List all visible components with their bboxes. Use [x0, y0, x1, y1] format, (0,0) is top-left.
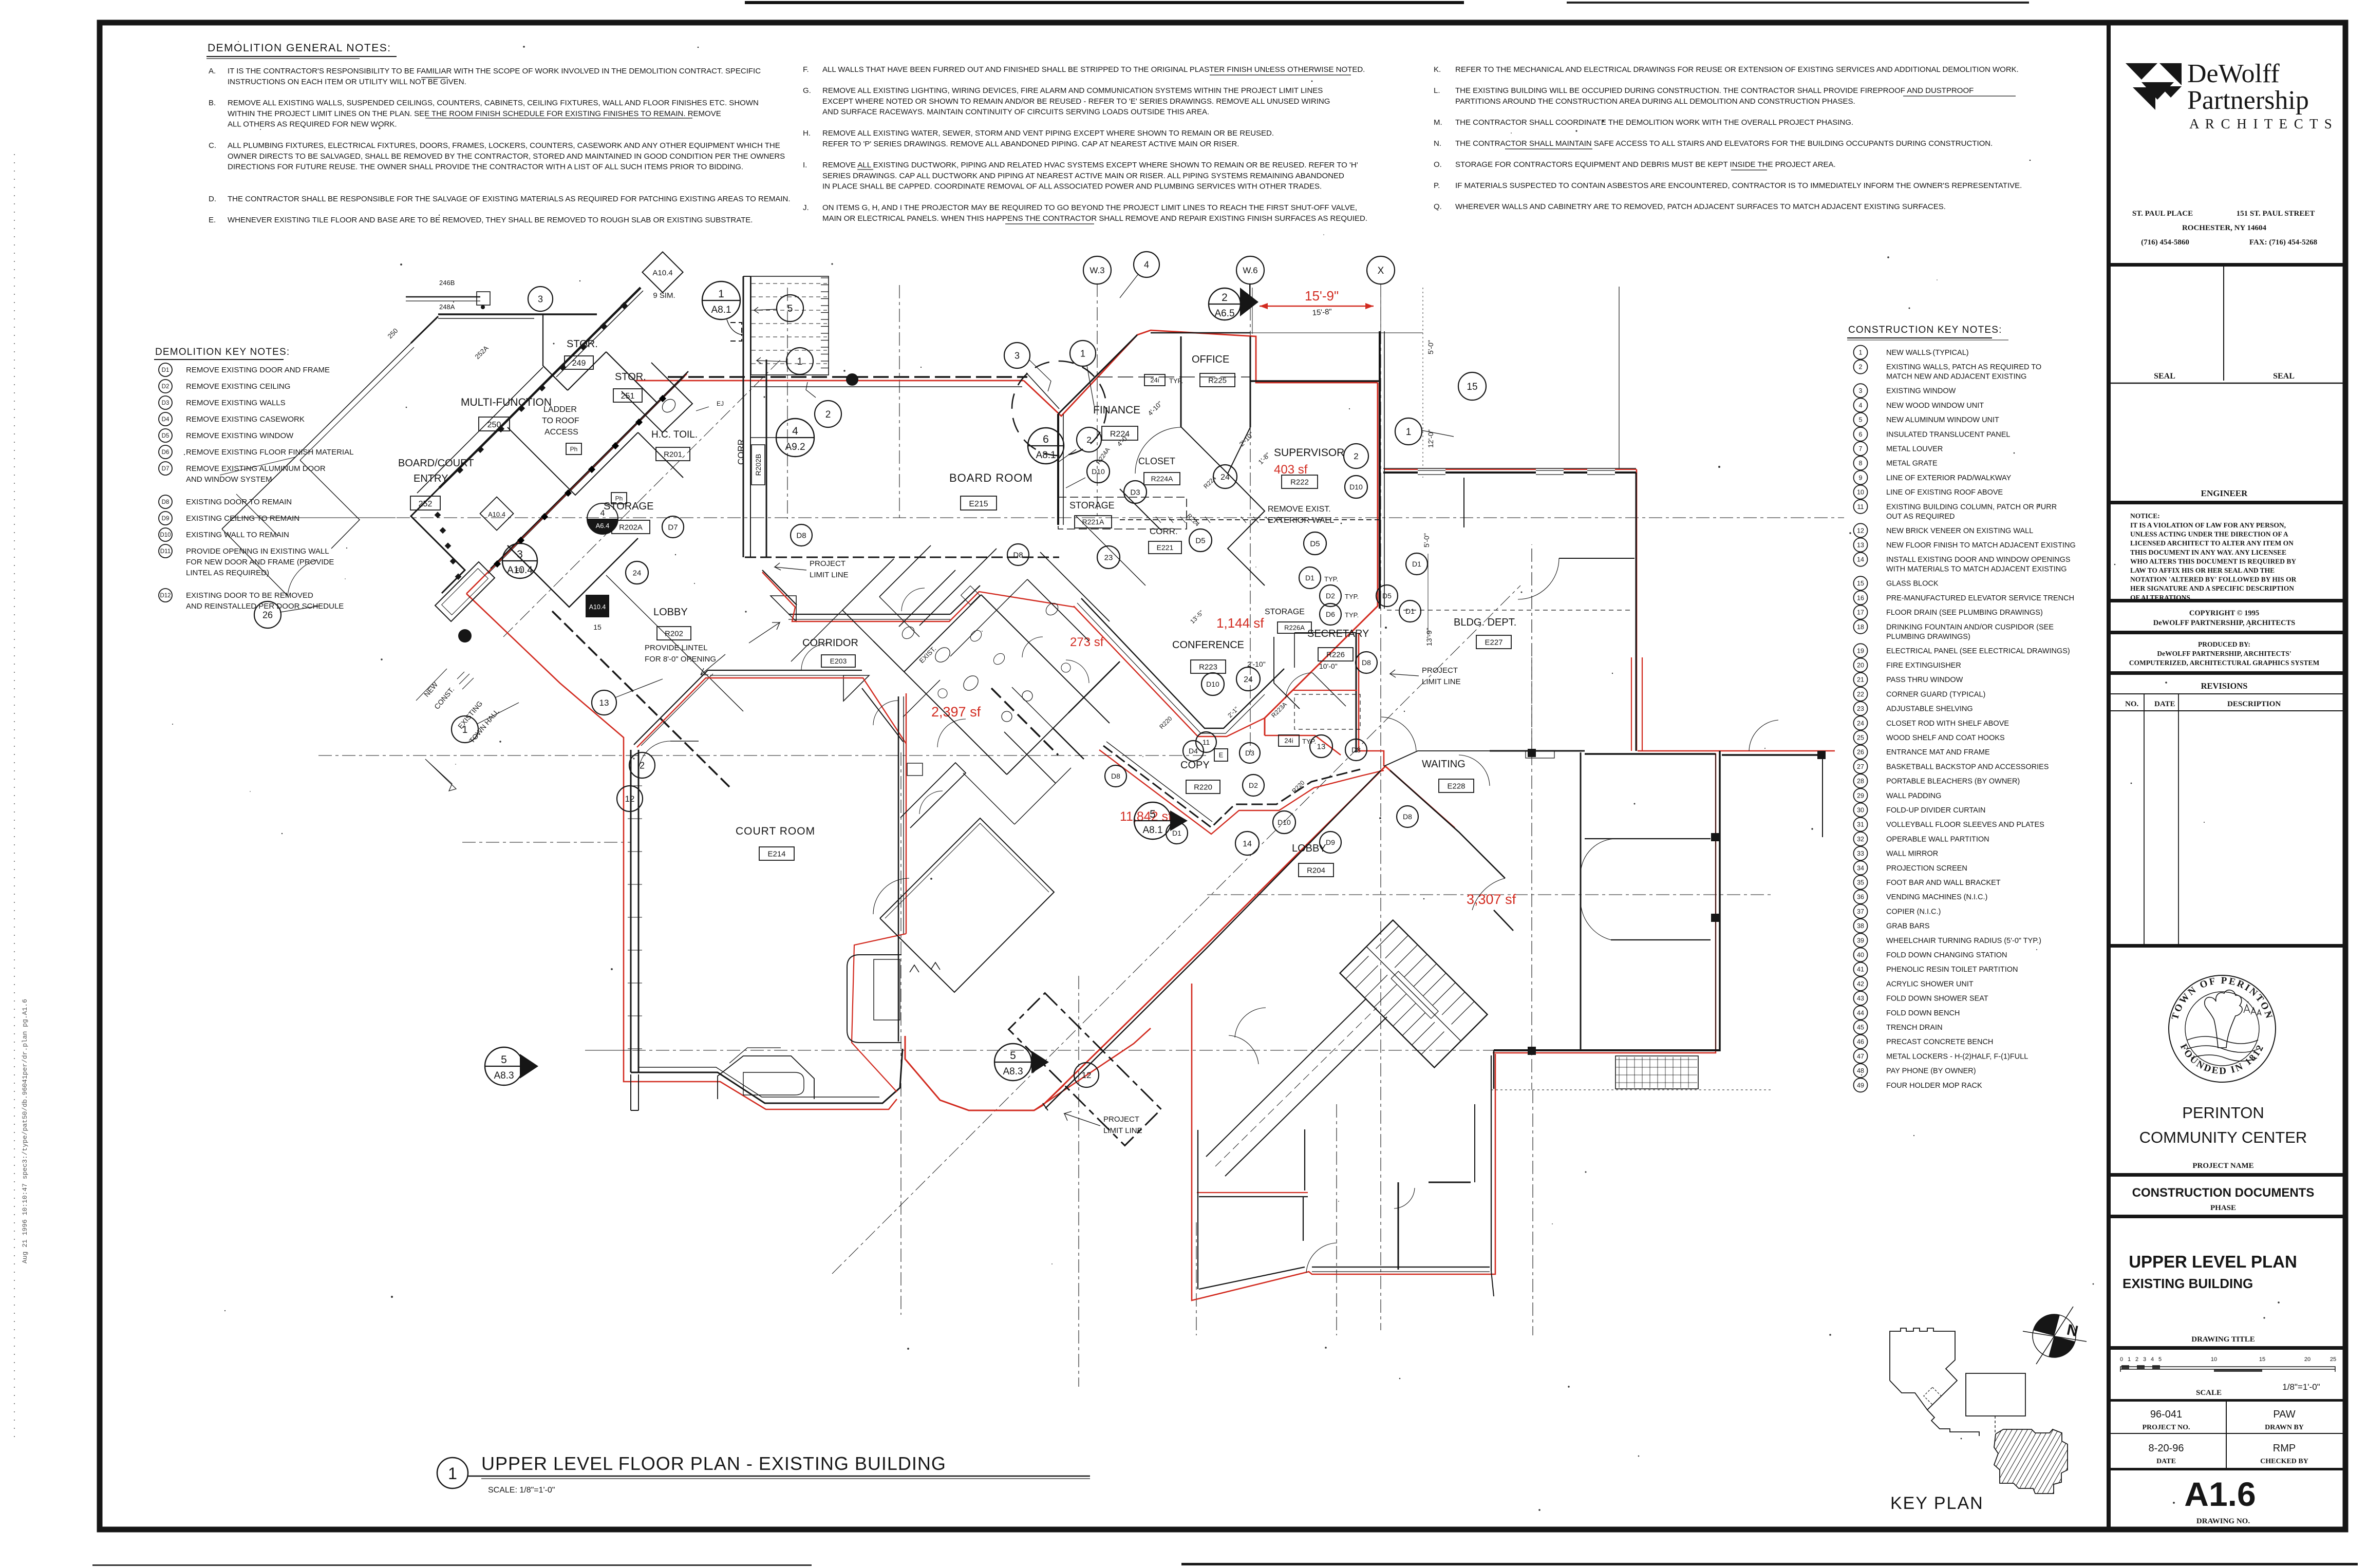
svg-text:D8: D8 — [1403, 813, 1412, 821]
svg-text:VENDING MACHINES (N.I.C.): VENDING MACHINES (N.I.C.) — [1886, 893, 1987, 901]
svg-text:DATE: DATE — [2154, 700, 2175, 708]
svg-text:SUPERVISOR: SUPERVISOR — [1274, 447, 1344, 459]
svg-text:PASS THRU WINDOW: PASS THRU WINDOW — [1886, 676, 1963, 684]
svg-text:R202: R202 — [665, 629, 683, 638]
svg-text:A8.1: A8.1 — [711, 305, 731, 315]
svg-text:REMOVE EXISTING FLOOR FINISH M: REMOVE EXISTING FLOOR FINISH MATERIAL — [186, 448, 353, 457]
svg-text:5: 5 — [2158, 1356, 2162, 1363]
svg-text:TYP.: TYP. — [1345, 593, 1359, 600]
svg-text:4: 4 — [1144, 259, 1149, 270]
svg-text:AND WINDOW SYSTEM: AND WINDOW SYSTEM — [186, 475, 272, 484]
svg-text:13'-9": 13'-9" — [1425, 628, 1433, 646]
svg-text:3: 3 — [538, 294, 543, 304]
svg-text:DRAWING NO.: DRAWING NO. — [2196, 1517, 2250, 1525]
svg-text:12: 12 — [1082, 1070, 1092, 1080]
svg-text:13: 13 — [1317, 742, 1326, 751]
svg-text:47: 47 — [1857, 1053, 1864, 1060]
svg-text:EXISTING BUILDING: EXISTING BUILDING — [2122, 1276, 2253, 1291]
svg-text:TYP.: TYP. — [1345, 611, 1359, 619]
svg-text:COURT ROOM: COURT ROOM — [736, 825, 815, 837]
svg-text:3: 3 — [1015, 350, 1020, 361]
svg-text:CONFERENCE: CONFERENCE — [1172, 639, 1244, 651]
svg-text:INSULATED TRANSLUCENT PANEL: INSULATED TRANSLUCENT PANEL — [1886, 430, 2010, 439]
svg-text:Ph: Ph — [570, 445, 578, 452]
svg-text:W.3: W.3 — [1089, 266, 1104, 275]
svg-text:SEAL: SEAL — [2273, 372, 2295, 381]
svg-text:L.: L. — [1434, 86, 1440, 95]
svg-text:REVISIONS: REVISIONS — [2201, 681, 2248, 691]
svg-text:FAX: (716) 454-5268: FAX: (716) 454-5268 — [2249, 238, 2317, 247]
svg-text:24i: 24i — [1284, 737, 1293, 745]
svg-text:R226: R226 — [1326, 650, 1345, 659]
svg-text:151 ST. PAUL STREET: 151 ST. PAUL STREET — [2237, 210, 2315, 218]
svg-text:5: 5 — [787, 304, 793, 314]
svg-text:27: 27 — [1857, 763, 1864, 770]
svg-text:A6.5: A6.5 — [1214, 308, 1234, 319]
svg-text:NO.: NO. — [2125, 700, 2139, 708]
svg-text:BOARD ROOM: BOARD ROOM — [949, 471, 1033, 484]
svg-text:40: 40 — [1857, 952, 1864, 959]
svg-text:THE CONTRACTOR SHALL COORDINAT: THE CONTRACTOR SHALL COORDINATE THE DEMO… — [1455, 118, 1853, 127]
svg-text:35: 35 — [1857, 879, 1864, 886]
svg-text:CLOSET ROD WITH SHELF ABOVE: CLOSET ROD WITH SHELF ABOVE — [1886, 720, 2009, 728]
svg-text:ALL WALLS THAT HAVE BEEN FURRE: ALL WALLS THAT HAVE BEEN FURRED OUT AND … — [822, 65, 1365, 74]
svg-text:12: 12 — [1857, 527, 1864, 534]
svg-text:LOBBY: LOBBY — [653, 607, 688, 618]
svg-text:A10.4: A10.4 — [589, 603, 606, 611]
svg-text:AND REINSTALLED PER DOOR SCHED: AND REINSTALLED PER DOOR SCHEDULE — [186, 602, 344, 611]
svg-text:12'-0": 12'-0" — [1426, 429, 1435, 448]
svg-text:D8: D8 — [1111, 772, 1120, 780]
svg-text:N.: N. — [1434, 139, 1441, 148]
svg-text:D1: D1 — [1405, 607, 1415, 615]
svg-text:ST. PAUL PLACE: ST. PAUL PLACE — [2132, 210, 2193, 218]
svg-text:29: 29 — [1857, 792, 1864, 799]
svg-text:3: 3 — [2143, 1356, 2146, 1363]
svg-text:BASKETBALL BACKSTOP AND ACCESS: BASKETBALL BACKSTOP AND ACCESSORIES — [1886, 763, 2049, 771]
svg-text:W.6: W.6 — [1243, 266, 1257, 275]
svg-text:WHO ALTERS THIS DOCUMENT IS RE: WHO ALTERS THIS DOCUMENT IS REQUIRED BY — [2130, 557, 2296, 565]
svg-text:1: 1 — [448, 1464, 457, 1483]
svg-text:22: 22 — [1857, 691, 1864, 698]
svg-text:17: 17 — [1857, 609, 1864, 616]
svg-text:44: 44 — [1857, 1009, 1864, 1016]
svg-text:E221: E221 — [1157, 543, 1174, 552]
svg-text:SCALE: SCALE — [2196, 1389, 2222, 1397]
svg-text:D2: D2 — [1326, 592, 1335, 600]
svg-text:GLASS BLOCK: GLASS BLOCK — [1886, 580, 1939, 588]
svg-text:E203: E203 — [830, 657, 847, 665]
svg-text:FOUR HOLDER MOP RACK: FOUR HOLDER MOP RACK — [1886, 1082, 1982, 1090]
svg-text:THE CONTRACTOR SHALL BE RESPON: THE CONTRACTOR SHALL BE RESPONSIBLE FOR … — [228, 195, 791, 203]
svg-text:DeWolff: DeWolff — [2187, 59, 2280, 88]
svg-text:11: 11 — [1857, 503, 1864, 511]
svg-text:Partnership: Partnership — [2187, 86, 2309, 115]
svg-text:R202A: R202A — [619, 523, 643, 532]
svg-text:DESCRIPTION: DESCRIPTION — [2227, 700, 2281, 708]
svg-text:REFER TO 'P' SERIES DRAWINGS.: REFER TO 'P' SERIES DRAWINGS. REMOVE ALL… — [822, 140, 1239, 148]
svg-text:46: 46 — [1857, 1038, 1864, 1046]
svg-text:INSTRUCTIONS ON EACH ITEM OR U: INSTRUCTIONS ON EACH ITEM OR UTILITY WIL… — [228, 78, 466, 86]
svg-text:R224A: R224A — [1151, 475, 1173, 483]
svg-text:H.: H. — [803, 129, 811, 138]
svg-text:Ph: Ph — [615, 495, 623, 502]
svg-text:15: 15 — [593, 623, 602, 631]
svg-text:EXISTING WINDOW: EXISTING WINDOW — [1886, 387, 1956, 395]
svg-text:43: 43 — [1857, 995, 1864, 1002]
svg-text:REMOVE ALL EXISTING DUCTWORK,: REMOVE ALL EXISTING DUCTWORK, PIPING AND… — [822, 161, 1358, 169]
svg-text:FOR NEW DOOR AND FRAME (PROVID: FOR NEW DOOR AND FRAME (PROVIDE — [186, 558, 334, 566]
svg-text:PROJECT: PROJECT — [810, 559, 846, 568]
svg-text:96-041: 96-041 — [2150, 1409, 2182, 1420]
svg-text:D3: D3 — [162, 400, 170, 406]
svg-text:B.: B. — [209, 99, 216, 107]
svg-text:2: 2 — [1222, 292, 1228, 304]
svg-text:G.: G. — [803, 86, 811, 95]
svg-text:I.: I. — [803, 161, 807, 169]
svg-text:ROCHESTER, NY 14604: ROCHESTER, NY 14604 — [2182, 224, 2267, 232]
svg-text:9: 9 — [1859, 474, 1863, 481]
svg-text:26: 26 — [1857, 749, 1864, 756]
svg-text:SECRETARY: SECRETARY — [1307, 628, 1369, 639]
svg-text:11,842 sf: 11,842 sf — [1120, 809, 1172, 824]
svg-text:FOLD-UP DIVIDER CURTAIN: FOLD-UP DIVIDER CURTAIN — [1886, 806, 1985, 815]
svg-text:14: 14 — [1857, 556, 1864, 563]
svg-text:LICENSED ARCHITECT TO ALTER AN: LICENSED ARCHITECT TO ALTER ANY ITEM ON — [2130, 539, 2294, 547]
svg-text:FIRE EXTINGUISHER: FIRE EXTINGUISHER — [1886, 662, 1961, 670]
svg-text:CORR.: CORR. — [1150, 526, 1178, 536]
svg-text:LINE OF EXISTING ROOF ABOVE: LINE OF EXISTING ROOF ABOVE — [1886, 488, 2003, 497]
svg-text:R226A: R226A — [1284, 624, 1305, 632]
svg-text:14: 14 — [1243, 840, 1252, 848]
svg-text:25: 25 — [1857, 734, 1864, 742]
svg-text:SERIES DRAWINGS. CAP ALL DUCT: SERIES DRAWINGS. CAP ALL DUCTWORK AND PI… — [822, 172, 1344, 180]
svg-text:246B: 246B — [439, 279, 455, 287]
svg-text:E214: E214 — [767, 849, 785, 858]
svg-text:D6: D6 — [162, 449, 170, 456]
svg-text:D1: D1 — [1172, 829, 1181, 837]
svg-text:PERINTON: PERINTON — [2182, 1104, 2264, 1122]
svg-text:3: 3 — [517, 549, 523, 560]
svg-text:ADJUSTABLE SHELVING: ADJUSTABLE SHELVING — [1886, 705, 1973, 713]
svg-text:DRAWING TITLE: DRAWING TITLE — [2191, 1335, 2255, 1344]
svg-text:5: 5 — [1859, 417, 1863, 424]
svg-text:WITHIN THE PROJECT LIMIT LINES: WITHIN THE PROJECT LIMIT LINES ON THE PL… — [228, 109, 721, 118]
svg-text:A8.3: A8.3 — [1003, 1066, 1023, 1077]
svg-text:15'-9": 15'-9" — [1305, 288, 1339, 304]
svg-text:REMOVE ALL EXISTING WATER, SEW: REMOVE ALL EXISTING WATER, SEWER, STORM … — [822, 129, 1274, 138]
svg-text:36: 36 — [1857, 894, 1864, 901]
svg-text:2: 2 — [2135, 1356, 2138, 1363]
svg-text:PROJECT: PROJECT — [1103, 1115, 1139, 1124]
svg-text:FOLD DOWN BENCH: FOLD DOWN BENCH — [1886, 1009, 1960, 1017]
svg-text:FOLD DOWN CHANGING STATION: FOLD DOWN CHANGING STATION — [1886, 951, 2007, 959]
svg-text:WAITING: WAITING — [1422, 759, 1466, 770]
svg-text:6: 6 — [1859, 431, 1863, 438]
svg-text:SCALE: 1/8"=1'-0": SCALE: 1/8"=1'-0" — [488, 1486, 555, 1495]
svg-text:A8.3: A8.3 — [494, 1070, 514, 1081]
svg-text:273 sf: 273 sf — [1070, 635, 1104, 649]
svg-text:E215: E215 — [969, 500, 988, 508]
svg-text:COMMUNITY CENTER: COMMUNITY CENTER — [2139, 1128, 2307, 1146]
svg-text:X: X — [1378, 266, 1384, 276]
svg-text:K.: K. — [1434, 65, 1441, 74]
svg-text:248A: 248A — [439, 303, 455, 311]
svg-text:REMOVE EXISTING WINDOW: REMOVE EXISTING WINDOW — [186, 431, 294, 440]
svg-text:NOTATION 'ALTERED BY' FOLLOWED: NOTATION 'ALTERED BY' FOLLOWED BY HIS OR — [2130, 576, 2297, 583]
svg-text:250: 250 — [487, 421, 501, 429]
svg-text:R225: R225 — [1208, 376, 1227, 385]
svg-text:DRINKING FOUNTAIN AND/OR CUSPI: DRINKING FOUNTAIN AND/OR CUSPIDOR (SEE — [1886, 623, 2054, 631]
svg-text:CORR.: CORR. — [736, 437, 746, 465]
svg-text:PROJECT NAME: PROJECT NAME — [2192, 1162, 2253, 1170]
svg-text:A.: A. — [209, 67, 216, 75]
svg-text:WHEREVER WALLS AND CABINETRY A: WHEREVER WALLS AND CABINETRY ARE TO REMO… — [1455, 202, 1946, 211]
svg-text:34: 34 — [1857, 864, 1864, 872]
svg-text:GRAB BARS: GRAB BARS — [1886, 922, 1930, 931]
svg-text:PRE-MANUFACTURED ELEVATOR SERV: PRE-MANUFACTURED ELEVATOR SERVICE TRENCH — [1886, 594, 2074, 602]
svg-text:ACCESS: ACCESS — [544, 428, 578, 437]
svg-text:D8: D8 — [1351, 746, 1361, 754]
svg-text:OFFICE: OFFICE — [1192, 354, 1229, 365]
svg-text:J.: J. — [803, 203, 809, 212]
svg-text:COPIER (N.I.C.): COPIER (N.I.C.) — [1886, 908, 1941, 916]
svg-text:D10: D10 — [1349, 483, 1363, 491]
svg-text:D2: D2 — [1249, 781, 1258, 789]
svg-text:D10: D10 — [160, 532, 171, 538]
svg-text:(716) 454-5860: (716) 454-5860 — [2141, 238, 2189, 247]
svg-text:EXISTING WALLS, PATCH AS REQUI: EXISTING WALLS, PATCH AS REQUIRED TO — [1886, 363, 2041, 371]
svg-text:E.: E. — [209, 216, 216, 224]
svg-text:STORAGE: STORAGE — [1265, 608, 1305, 616]
svg-text:1/8"=1'-0": 1/8"=1'-0" — [2282, 1382, 2320, 1392]
svg-text:D5: D5 — [162, 433, 170, 439]
svg-text:D5: D5 — [1310, 539, 1320, 548]
svg-text:INSTALL EXISTING DOOR AND WIND: INSTALL EXISTING DOOR AND WINDOW OPENING… — [1886, 556, 2071, 564]
svg-text:D8: D8 — [1013, 551, 1023, 559]
svg-text:D10: D10 — [1092, 467, 1105, 476]
svg-text:VOLLEYBALL FLOOR SLEEVES AND P: VOLLEYBALL FLOOR SLEEVES AND PLATES — [1886, 821, 2044, 829]
svg-text:REMOVE EXISTING ALUMINUM DOOR: REMOVE EXISTING ALUMINUM DOOR — [186, 464, 326, 473]
svg-text:ENTRY: ENTRY — [414, 473, 448, 484]
svg-text:D3: D3 — [1130, 488, 1140, 497]
svg-text:D5: D5 — [1195, 536, 1205, 545]
svg-text:13: 13 — [1857, 542, 1864, 549]
svg-text:D12: D12 — [160, 593, 171, 599]
svg-text:D6: D6 — [1326, 610, 1335, 618]
svg-text:D4: D4 — [1189, 747, 1198, 755]
svg-text:LINE OF EXTERIOR PAD/WALKWAY: LINE OF EXTERIOR PAD/WALKWAY — [1886, 474, 2012, 482]
svg-text:FOLD DOWN SHOWER SEAT: FOLD DOWN SHOWER SEAT — [1886, 995, 1988, 1003]
svg-text:P.: P. — [1434, 181, 1440, 190]
svg-text:AND SURFACE RACEWAYS. MAINTAI: AND SURFACE RACEWAYS. MAINTAIN CONTINUIT… — [822, 108, 1209, 117]
svg-text:ENGINEER: ENGINEER — [2201, 488, 2248, 498]
svg-text:LIMIT LINE: LIMIT LINE — [810, 571, 849, 579]
svg-text:A8.1: A8.1 — [1142, 825, 1162, 836]
svg-text:MATCH NEW AND ADJACENT EXISTIN: MATCH NEW AND ADJACENT EXISTING — [1886, 373, 2026, 381]
svg-text:252: 252 — [419, 500, 433, 508]
svg-text:15: 15 — [2259, 1356, 2265, 1363]
svg-text:D.: D. — [209, 195, 216, 203]
svg-text:ACRYLIC SHOWER UNIT: ACRYLIC SHOWER UNIT — [1886, 980, 1974, 988]
svg-text:FLOOR DRAIN (SEE PLUMBING DRAW: FLOOR DRAIN (SEE PLUMBING DRAWINGS) — [1886, 609, 2043, 617]
svg-text:1: 1 — [1080, 348, 1085, 358]
svg-text:4: 4 — [792, 425, 798, 437]
svg-text:1,144 sf: 1,144 sf — [1216, 615, 1264, 631]
svg-text:37: 37 — [1857, 908, 1864, 915]
svg-text:LAW TO AFFIX HIS OR HER SEAL A: LAW TO AFFIX HIS OR HER SEAL AND THE — [2130, 566, 2275, 574]
svg-text:2: 2 — [1354, 451, 1358, 461]
svg-text:2: 2 — [1859, 364, 1863, 371]
svg-text:7: 7 — [1859, 445, 1863, 452]
svg-text:OWNER DIRECTS TO BE SALVAGED,: OWNER DIRECTS TO BE SALVAGED, SHALL BE R… — [228, 152, 785, 161]
svg-text:R221A: R221A — [1082, 518, 1104, 526]
svg-text:WHENEVER EXISTING TILE FLOOR A: WHENEVER EXISTING TILE FLOOR AND BASE AR… — [228, 216, 753, 224]
svg-text:OPERABLE WALL PARTITION: OPERABLE WALL PARTITION — [1886, 835, 1989, 843]
svg-text:SEAL: SEAL — [2154, 372, 2175, 381]
svg-text:DIRECTIONS FOR FUTURE REUSE.: DIRECTIONS FOR FUTURE REUSE. THE OWNER S… — [228, 163, 743, 172]
svg-text:23: 23 — [1104, 553, 1113, 562]
svg-text:18: 18 — [1857, 624, 1864, 631]
svg-text:30: 30 — [1857, 807, 1864, 814]
svg-text:CONSTRUCTION DOCUMENTS: CONSTRUCTION DOCUMENTS — [2132, 1186, 2315, 1200]
svg-text:ELECTRICAL PANEL (SEE ELECTRIC: ELECTRICAL PANEL (SEE ELECTRICAL DRAWING… — [1886, 647, 2070, 655]
svg-text:A10.4: A10.4 — [488, 511, 505, 518]
svg-text:A R C H I T E C T S: A R C H I T E C T S — [2189, 116, 2334, 131]
svg-text:10: 10 — [2211, 1356, 2217, 1363]
svg-text:R223: R223 — [1199, 663, 1217, 671]
svg-text:249: 249 — [572, 359, 586, 368]
svg-text:8: 8 — [1859, 460, 1863, 467]
svg-text:D8: D8 — [796, 531, 806, 540]
svg-text:STORAGE FOR CONTRACTORS EQUIPM: STORAGE FOR CONTRACTORS EQUIPMENT AND DE… — [1455, 160, 1836, 169]
svg-text:1: 1 — [718, 288, 724, 300]
svg-text:THE CONTRACTOR SHALL MAINTAIN: THE CONTRACTOR SHALL MAINTAIN SAFE ACCES… — [1455, 139, 1993, 148]
svg-text:DEMOLITION KEY NOTES:: DEMOLITION KEY NOTES: — [155, 347, 290, 357]
svg-text:1: 1 — [797, 356, 803, 367]
svg-text:THE EXISTING BUILDING WILL BE: THE EXISTING BUILDING WILL BE OCCUPIED D… — [1455, 86, 1974, 95]
svg-text:RMP: RMP — [2273, 1443, 2296, 1454]
svg-text:EXISTING DOOR TO BE REMOVED: EXISTING DOOR TO BE REMOVED — [186, 591, 313, 600]
svg-text:EXTERIOR WALL: EXTERIOR WALL — [1268, 516, 1334, 525]
svg-text:FOOT BAR AND WALL BRACKET: FOOT BAR AND WALL BRACKET — [1886, 879, 2001, 887]
svg-text:ON ITEMS G, H, AND I THE PROJE: ON ITEMS G, H, AND I THE PROJECTOR MAY B… — [822, 203, 1357, 212]
svg-text:1: 1 — [1859, 349, 1863, 356]
svg-text:38: 38 — [1857, 922, 1864, 930]
svg-text:TYP.: TYP. — [1324, 575, 1338, 583]
svg-text:CONSTRUCTION KEY NOTES:: CONSTRUCTION KEY NOTES: — [1848, 325, 2002, 335]
svg-text:16: 16 — [1857, 594, 1864, 601]
svg-text:M.: M. — [1434, 118, 1442, 127]
svg-text:NEW WOOD WINDOW UNIT: NEW WOOD WINDOW UNIT — [1886, 402, 1984, 410]
svg-text:D7: D7 — [162, 466, 170, 472]
svg-text:BLDG. DEPT.: BLDG. DEPT. — [1454, 617, 1516, 628]
svg-text:KEY PLAN: KEY PLAN — [1890, 1494, 1984, 1513]
svg-text:5: 5 — [1150, 808, 1156, 820]
svg-text:9 SIM.: 9 SIM. — [653, 291, 675, 300]
svg-text:COPYRIGHT © 1995: COPYRIGHT © 1995 — [2189, 609, 2259, 617]
svg-text:NEW ALUMINUM WINDOW UNIT: NEW ALUMINUM WINDOW UNIT — [1886, 416, 1999, 424]
svg-text:E227: E227 — [1485, 638, 1502, 647]
svg-text:A10.4: A10.4 — [652, 269, 672, 277]
svg-text:24: 24 — [1857, 720, 1864, 727]
svg-text:6: 6 — [1043, 433, 1049, 445]
svg-text:FOR 8'-0" OPENING: FOR 8'-0" OPENING — [645, 655, 716, 664]
svg-text:Aug 21 1996 10:10:47 spec3:: Aug 21 1996 10:10:47 spec3:/type/pat50/d… — [21, 999, 29, 1263]
svg-text:39: 39 — [1857, 937, 1864, 944]
svg-text:PHENOLIC RESIN TOILET PARTITIO: PHENOLIC RESIN TOILET PARTITION — [1886, 966, 2018, 974]
svg-text:DRAWN BY: DRAWN BY — [2265, 1424, 2304, 1431]
svg-text:R204: R204 — [1307, 866, 1325, 875]
svg-text:PRODUCED BY:: PRODUCED BY: — [2198, 640, 2250, 648]
svg-text:REMOVE ALL EXISTING LIGHTING,: REMOVE ALL EXISTING LIGHTING, WIRING DEV… — [822, 86, 1323, 95]
svg-text:32: 32 — [1857, 836, 1864, 843]
svg-text:D1: D1 — [162, 367, 170, 373]
svg-text:PROJECTION SCREEN: PROJECTION SCREEN — [1886, 864, 1967, 873]
svg-text:D8: D8 — [162, 499, 170, 505]
svg-text:24: 24 — [633, 569, 642, 577]
svg-text:3: 3 — [1859, 387, 1863, 394]
svg-text:DATE: DATE — [2156, 1458, 2176, 1465]
svg-text:IT IS A VIOLATION OF LAW FOR A: IT IS A VIOLATION OF LAW FOR ANY PERSON, — [2130, 521, 2286, 529]
svg-text:REMOVE EXISTING WALLS: REMOVE EXISTING WALLS — [186, 399, 286, 407]
svg-text:HER SIGNATURE AND A SPECIFIC D: HER SIGNATURE AND A SPECIFIC DESCRIPTION — [2130, 584, 2294, 592]
svg-text:REFER TO THE MECHANICAL AND EL: REFER TO THE MECHANICAL AND ELECTRICAL D… — [1455, 65, 2019, 74]
svg-text:MAIN OR ELECTRICAL PANELS. WH: MAIN OR ELECTRICAL PANELS. WHEN THIS HAP… — [822, 214, 1367, 223]
svg-text:D3: D3 — [1245, 749, 1254, 757]
svg-text:METAL GRATE: METAL GRATE — [1886, 460, 1938, 468]
svg-text:LINTEL AS REQUIRED): LINTEL AS REQUIRED) — [186, 569, 269, 577]
svg-text:2: 2 — [1086, 435, 1091, 445]
svg-text:REMOVE ALL EXISTING WALLS, SUS: REMOVE ALL EXISTING WALLS, SUSPENDED CEI… — [228, 99, 759, 107]
svg-text:WITH MATERIALS TO MATCH ADJACE: WITH MATERIALS TO MATCH ADJACENT EXISTIN… — [1886, 565, 2067, 574]
svg-text:WALL PADDING: WALL PADDING — [1886, 792, 1941, 800]
svg-text:LIMIT LINE: LIMIT LINE — [1422, 677, 1461, 686]
svg-text:A9.2: A9.2 — [785, 442, 805, 452]
svg-text:D2: D2 — [162, 384, 170, 390]
svg-text:45: 45 — [1857, 1024, 1864, 1031]
svg-text:24: 24 — [1244, 675, 1253, 684]
svg-text:EXISTING CEILING TO REMAIN: EXISTING CEILING TO REMAIN — [186, 514, 299, 523]
svg-text:8-20-96: 8-20-96 — [2149, 1443, 2184, 1454]
svg-text:33: 33 — [1857, 850, 1864, 857]
svg-text:251: 251 — [621, 392, 635, 401]
svg-text:IF MATERIALS SUSPECTED TO CONT: IF MATERIALS SUSPECTED TO CONTAIN ASBEST… — [1455, 181, 2022, 190]
svg-text:2: 2 — [825, 409, 831, 420]
svg-text:D4: D4 — [162, 417, 170, 423]
svg-text:C.: C. — [209, 141, 216, 150]
svg-text:PORTABLE BLEACHERS (BY OWNER): PORTABLE BLEACHERS (BY OWNER) — [1886, 778, 2020, 786]
svg-text:DEMOLITION GENERAL NOTES:: DEMOLITION GENERAL NOTES: — [208, 42, 391, 54]
svg-text:EJ: EJ — [515, 567, 522, 574]
svg-text:E228: E228 — [1447, 782, 1465, 790]
svg-text:NEW WALLS (TYPICAL): NEW WALLS (TYPICAL) — [1886, 349, 1969, 357]
svg-text:IN PLACE SHALL BE CAPPED. COO: IN PLACE SHALL BE CAPPED. COORDINATE REM… — [822, 182, 1322, 191]
svg-text:TYP.: TYP. — [1302, 738, 1316, 745]
svg-text:PAY PHONE (BY OWNER): PAY PHONE (BY OWNER) — [1886, 1067, 1976, 1075]
svg-text:F.: F. — [803, 65, 809, 74]
svg-text:DeWOLFF PARTNERSHIP, ARCHITECT: DeWOLFF PARTNERSHIP, ARCHITECTS — [2153, 619, 2296, 627]
svg-text:10: 10 — [1857, 489, 1864, 496]
svg-text:D5: D5 — [1382, 592, 1392, 600]
svg-text:D11: D11 — [160, 549, 171, 555]
svg-text:COMPUTERIZED, ARCHITECTURAL GR: COMPUTERIZED, ARCHITECTURAL GRAPHICS SYS… — [2129, 659, 2320, 667]
svg-text:STOR.: STOR. — [615, 371, 646, 383]
svg-text:15'-8": 15'-8" — [1312, 307, 1332, 317]
svg-text:D9: D9 — [162, 516, 170, 522]
svg-text:5: 5 — [501, 1054, 507, 1066]
svg-text:NEW BRICK VENEER ON EXISTING W: NEW BRICK VENEER ON EXISTING WALL — [1886, 527, 2033, 535]
